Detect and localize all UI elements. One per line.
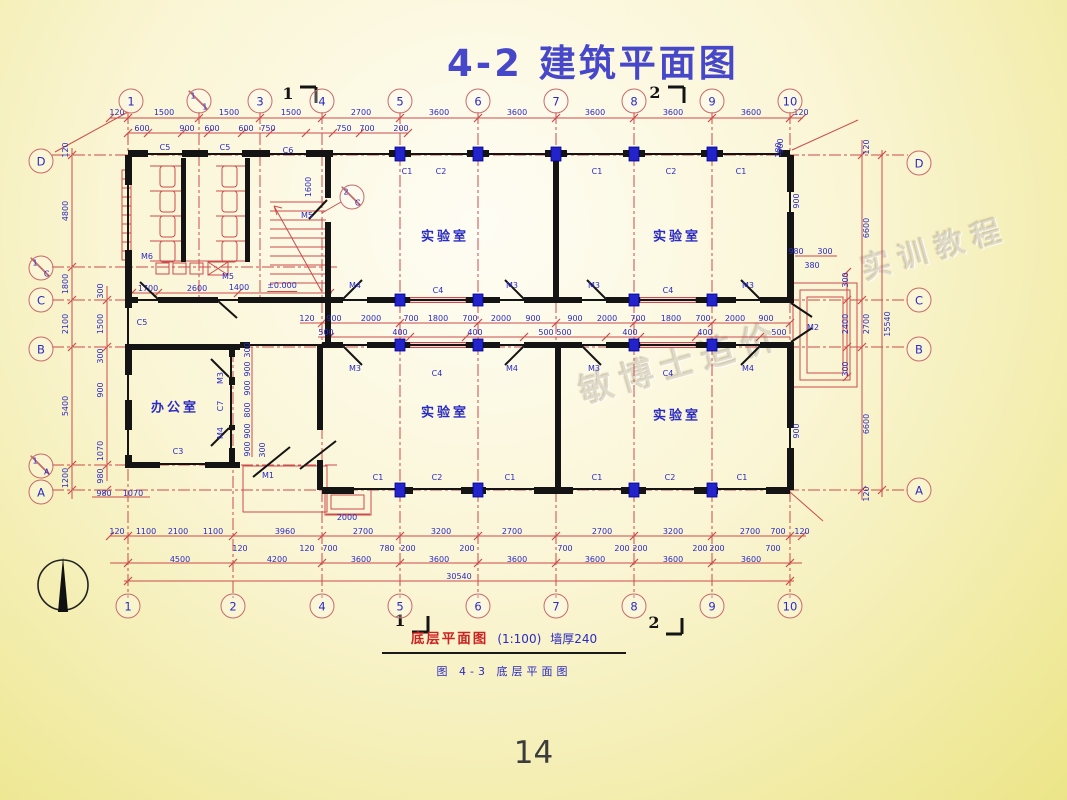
dim-label: 700 <box>770 528 785 536</box>
grid-bubble-A: A <box>907 478 932 503</box>
dim-label: 900 <box>567 315 582 323</box>
dim-label: 400 <box>467 329 482 337</box>
dim-label: 4200 <box>267 556 287 564</box>
room-label: 实验室 <box>421 407 469 420</box>
dim-label: C2 <box>665 474 676 482</box>
dim-label: 3200 <box>431 528 451 536</box>
dim-label: 2700 <box>353 528 373 536</box>
caption-wall-note: 墙厚240 <box>550 630 597 647</box>
dim-label: 3600 <box>351 556 371 564</box>
dim-label: C4 <box>432 370 443 378</box>
dim-label: 300 <box>842 361 850 376</box>
dim-label: C2 <box>666 168 677 176</box>
dim-label: 3600 <box>741 109 761 117</box>
grid-bubble-8: 8 <box>622 89 647 114</box>
dim-label: M3 <box>588 365 600 373</box>
dim-label: 500 <box>556 329 571 337</box>
dim-label: 400 <box>622 329 637 337</box>
room-label: 办公室 <box>151 402 199 415</box>
dim-label: 750 <box>260 125 275 133</box>
dim-label: 980 <box>96 490 111 498</box>
dim-label: ±0.000 <box>267 282 297 292</box>
dim-label: 6600 <box>863 414 871 434</box>
dim-label: 2000 <box>337 514 357 522</box>
dim-label: 600 <box>204 125 219 133</box>
dim-label: 600 <box>238 125 253 133</box>
dim-label: C2 <box>436 168 447 176</box>
dim-label: M5 <box>222 273 234 281</box>
dim-label: 1400 <box>229 284 249 292</box>
dim-label: C4 <box>433 287 444 295</box>
dim-label: 300 <box>97 348 105 363</box>
dim-label: 3600 <box>429 556 449 564</box>
grid-bubble-B: B <box>907 337 932 362</box>
dim-label: 700 <box>462 315 477 323</box>
dim-label: M4 <box>742 365 754 373</box>
dim-label: 120 <box>232 545 247 553</box>
grid-bubble-4: 4 <box>310 89 335 114</box>
section-mark-number: 2 <box>648 615 659 631</box>
dim-label: C1 <box>402 168 413 176</box>
dim-label: M2 <box>807 324 819 332</box>
dim-label: 300 <box>817 248 832 256</box>
grid-bubble-9: 9 <box>700 89 725 114</box>
grid-bubble-D: D <box>29 149 54 174</box>
dim-label: C3 <box>173 448 184 456</box>
grid-bubble-5: 5 <box>388 89 413 114</box>
dim-label: 3200 <box>663 528 683 536</box>
dim-label: M3 <box>506 282 518 290</box>
dim-label: 300 <box>244 342 252 357</box>
dim-label: 120 <box>299 545 314 553</box>
dim-label: 2700 <box>863 314 871 334</box>
dim-label: C1 <box>737 474 748 482</box>
grid-bubble-1-1: 11 <box>187 89 212 114</box>
dim-label: 700 <box>557 545 572 553</box>
dim-label: 120 <box>863 486 871 501</box>
dim-label: C4 <box>663 370 674 378</box>
dim-label: 2000 <box>491 315 511 323</box>
dim-label: 2700 <box>502 528 522 536</box>
dim-label: 2000 <box>597 315 617 323</box>
dim-label: 1800 <box>62 274 70 294</box>
dim-label: C5 <box>137 319 148 327</box>
dim-label: M6 <box>141 253 153 261</box>
dim-label: 2400 <box>842 314 850 334</box>
dim-label: 5400 <box>62 396 70 416</box>
dim-label: 500 <box>538 329 553 337</box>
grid-bubble-C: C <box>29 288 54 313</box>
grid-bubble-1: 1 <box>116 594 141 619</box>
grid-bubble-10: 10 <box>778 89 803 114</box>
dim-label: 120 <box>299 315 314 323</box>
grid-bubble-C: C <box>907 288 932 313</box>
dim-label: M3 <box>742 282 754 290</box>
dim-label: 6600 <box>863 218 871 238</box>
dim-label: 2700 <box>351 109 371 117</box>
dim-label: 1600 <box>305 177 313 197</box>
dim-label: 3960 <box>275 528 295 536</box>
grid-bubble-1-A: 1A <box>29 454 54 479</box>
dim-label: C4 <box>663 287 674 295</box>
caption-line: 底层平面图 (1:100) 墙厚240 <box>382 627 626 654</box>
grid-bubble-B: B <box>29 337 54 362</box>
dim-label: 200 <box>692 545 707 553</box>
dim-label: 120 <box>794 528 809 536</box>
dim-label: M3 <box>217 372 225 384</box>
dim-label: 3600 <box>663 109 683 117</box>
dim-label: C1 <box>736 168 747 176</box>
dim-label: 30540 <box>446 573 471 581</box>
dim-label: 900 <box>793 193 801 208</box>
dim-label: 120 <box>62 142 70 157</box>
dim-label: 900 <box>244 380 252 395</box>
dim-label: 2700 <box>592 528 612 536</box>
room-label: 实验室 <box>421 231 469 244</box>
section-mark-number: 1 <box>282 86 293 102</box>
grid-bubble-9: 9 <box>700 594 725 619</box>
dim-label: 500 <box>318 329 333 337</box>
page-number: 14 <box>0 735 1067 771</box>
dim-label: 300 <box>97 283 105 298</box>
dim-label: 900 <box>244 361 252 376</box>
dim-label: 1700 <box>138 285 158 293</box>
dim-label: 200 <box>459 545 474 553</box>
grid-bubble-8: 8 <box>622 594 647 619</box>
dim-label: 2000 <box>361 315 381 323</box>
dim-label: 1100 <box>136 528 156 536</box>
dim-label: 180 <box>775 142 783 157</box>
grid-bubble-10: 10 <box>778 594 803 619</box>
grid-bubble-7: 7 <box>544 594 569 619</box>
dim-label: 900 <box>793 423 801 438</box>
dim-label: 900 <box>97 382 105 397</box>
dim-label: C1 <box>592 168 603 176</box>
dim-label: 600 <box>134 125 149 133</box>
dim-label: 500 <box>771 329 786 337</box>
dim-label: 15540 <box>884 311 892 336</box>
dim-label: M5 <box>301 212 313 220</box>
dim-label: 900 <box>179 125 194 133</box>
drawing-caption: 底层平面图 (1:100) 墙厚240 图 4-3 底层平面图 <box>382 627 626 679</box>
dim-label: 3600 <box>507 556 527 564</box>
dim-label: 3600 <box>429 109 449 117</box>
dim-label: C1 <box>592 474 603 482</box>
grid-bubble-3: 3 <box>248 89 273 114</box>
dim-label: 2700 <box>740 528 760 536</box>
dim-label: 900 <box>244 441 252 456</box>
grid-bubble-D: D <box>907 151 932 176</box>
dim-label: 980 <box>788 248 803 256</box>
dim-label: C5 <box>220 144 231 152</box>
dim-label: 1070 <box>97 441 105 461</box>
dim-label: M3 <box>349 365 361 373</box>
dim-label: 4500 <box>170 556 190 564</box>
dim-label: 900 <box>758 315 773 323</box>
dim-label: M3 <box>588 282 600 290</box>
dim-label: C2 <box>432 474 443 482</box>
dim-label: 2000 <box>725 315 745 323</box>
grid-bubble-7: 7 <box>544 89 569 114</box>
dim-label: 2100 <box>62 314 70 334</box>
dim-label: 980 <box>97 468 105 483</box>
dim-label: 300 <box>259 442 267 457</box>
room-label: 实验室 <box>653 231 701 244</box>
dim-label: 400 <box>697 329 712 337</box>
dim-label: 120 <box>109 528 124 536</box>
dim-label: C5 <box>160 144 171 152</box>
dim-label: 200 <box>632 545 647 553</box>
dim-label: 400 <box>392 329 407 337</box>
dim-label: 300 <box>842 272 850 287</box>
dim-label: 3600 <box>585 109 605 117</box>
dim-label: 3600 <box>663 556 683 564</box>
dim-label: 200 <box>709 545 724 553</box>
room-label: 实验室 <box>653 410 701 423</box>
dim-label: 900 <box>326 315 341 323</box>
dim-label: 2100 <box>168 528 188 536</box>
dim-label: C1 <box>373 474 384 482</box>
dim-label: 380 <box>804 262 819 270</box>
dim-label: 700 <box>695 315 710 323</box>
grid-bubble-1: 1 <box>119 89 144 114</box>
dim-label: 200 <box>393 125 408 133</box>
dim-label: 1500 <box>154 109 174 117</box>
grid-bubble-6: 6 <box>466 594 491 619</box>
dim-label: 200 <box>614 545 629 553</box>
grid-bubble-4: 4 <box>310 594 335 619</box>
dim-label: 1200 <box>62 468 70 488</box>
grid-bubble-6: 6 <box>466 89 491 114</box>
dim-label: 780 <box>379 545 394 553</box>
dim-label: M1 <box>262 472 274 480</box>
slide: 4-2 建筑平面图 敏博士造价 实训教程 <box>0 0 1067 800</box>
dim-label: 900 <box>244 423 252 438</box>
dim-label: 3600 <box>507 109 527 117</box>
dim-label: 3600 <box>585 556 605 564</box>
dim-label: M4 <box>506 365 518 373</box>
dim-label: 1500 <box>281 109 301 117</box>
dim-label: 1070 <box>123 490 143 498</box>
dim-label: C6 <box>283 147 294 155</box>
dim-label: 4800 <box>62 201 70 221</box>
caption-scale: (1:100) <box>497 632 541 646</box>
dim-label: 200 <box>400 545 415 553</box>
figure-number: 图 4-3 底层平面图 <box>382 663 626 679</box>
dim-label: 1500 <box>97 314 105 334</box>
section-mark-number: 2 <box>649 85 660 101</box>
dim-label: 3600 <box>741 556 761 564</box>
caption-title: 底层平面图 <box>411 627 489 647</box>
dim-label: M4 <box>217 427 225 439</box>
dim-label: 700 <box>765 545 780 553</box>
label-layer: 1201500150015002700360036003600360036001… <box>0 0 1067 800</box>
dim-label: 1500 <box>219 109 239 117</box>
dim-label: 900 <box>525 315 540 323</box>
dim-label: 700 <box>403 315 418 323</box>
dim-label: 120 <box>863 139 871 154</box>
grid-bubble-5: 5 <box>388 594 413 619</box>
dim-label: 700 <box>359 125 374 133</box>
dim-label: 700 <box>630 315 645 323</box>
dim-label: C7 <box>217 401 225 412</box>
grid-bubble-2-C: 2C <box>340 185 365 210</box>
dim-label: C1 <box>505 474 516 482</box>
dim-label: 800 <box>244 402 252 417</box>
dim-label: 1100 <box>203 528 223 536</box>
dim-label: 2600 <box>187 285 207 293</box>
dim-label: 1800 <box>428 315 448 323</box>
dim-label: 750 <box>336 125 351 133</box>
grid-bubble-2: 2 <box>221 594 246 619</box>
dim-label: 700 <box>322 545 337 553</box>
dim-label: 1800 <box>661 315 681 323</box>
grid-bubble-1-C: 1C <box>29 256 54 281</box>
dim-label: M4 <box>349 282 361 290</box>
grid-bubble-A: A <box>29 480 54 505</box>
